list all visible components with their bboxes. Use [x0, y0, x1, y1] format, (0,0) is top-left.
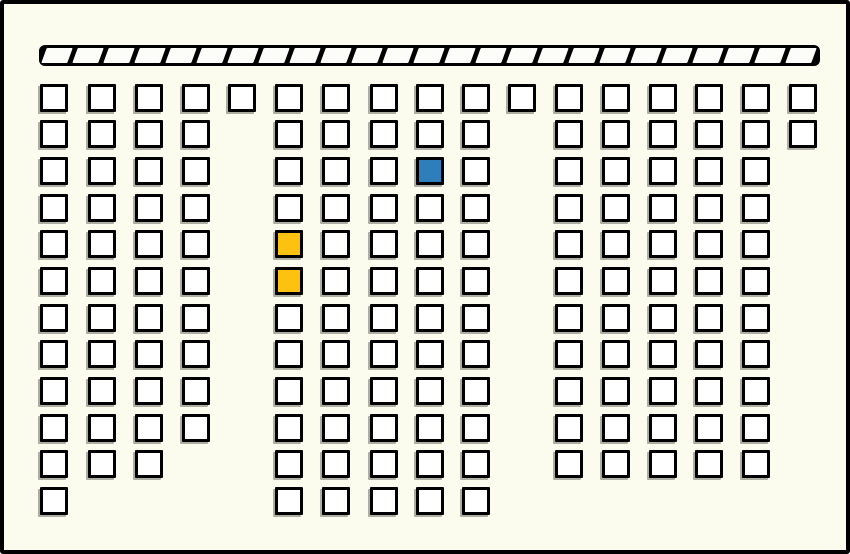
seat-r4-c15[interactable]	[695, 194, 723, 222]
seat-r7-c7[interactable]	[322, 304, 350, 332]
seat-r1-c1[interactable]	[40, 84, 68, 112]
seat-r6-c10[interactable]	[462, 267, 490, 295]
seat-r11-c1[interactable]	[40, 450, 68, 478]
seat-r7-c4[interactable]	[182, 304, 210, 332]
seat-r10-c16[interactable]	[742, 414, 770, 442]
seat-r1-c2[interactable]	[88, 84, 116, 112]
seat-r2-c10[interactable]	[462, 120, 490, 148]
seat-r4-c1[interactable]	[40, 194, 68, 222]
seat-r8-c15[interactable]	[695, 340, 723, 368]
seat-r10-c4[interactable]	[182, 414, 210, 442]
seat-r8-c13[interactable]	[602, 340, 630, 368]
seat-r3-c10[interactable]	[462, 157, 490, 185]
seat-grid	[4, 4, 846, 550]
seat-r2-c3[interactable]	[135, 120, 163, 148]
seat-r5-c15[interactable]	[695, 230, 723, 258]
seat-r1-c17[interactable]	[789, 84, 817, 112]
seat-r2-c15[interactable]	[695, 120, 723, 148]
seat-r1-c9[interactable]	[416, 84, 444, 112]
seat-r3-c7[interactable]	[322, 157, 350, 185]
seat-r1-c10[interactable]	[462, 84, 490, 112]
seat-r12-c8[interactable]	[370, 487, 398, 515]
seat-r1-c13[interactable]	[602, 84, 630, 112]
seat-r6-c16[interactable]	[742, 267, 770, 295]
seat-r9-c10[interactable]	[462, 377, 490, 405]
seat-r7-c16[interactable]	[742, 304, 770, 332]
seat-r10-c2[interactable]	[88, 414, 116, 442]
seat-r10-c6[interactable]	[275, 414, 303, 442]
seat-r12-c6[interactable]	[275, 487, 303, 515]
seat-r6-c9[interactable]	[416, 267, 444, 295]
seat-r7-c3[interactable]	[135, 304, 163, 332]
seat-r3-c13[interactable]	[602, 157, 630, 185]
seat-r10-c15[interactable]	[695, 414, 723, 442]
seat-r2-c1[interactable]	[40, 120, 68, 148]
seat-r5-c3[interactable]	[135, 230, 163, 258]
seat-r3-c8[interactable]	[370, 157, 398, 185]
seat-r6-c15[interactable]	[695, 267, 723, 295]
seat-r5-c14[interactable]	[649, 230, 677, 258]
seat-r2-c12[interactable]	[555, 120, 583, 148]
seat-r9-c14[interactable]	[649, 377, 677, 405]
seat-r8-c9[interactable]	[416, 340, 444, 368]
seat-r4-c16[interactable]	[742, 194, 770, 222]
seat-r1-c4[interactable]	[182, 84, 210, 112]
seat-r7-c12[interactable]	[555, 304, 583, 332]
seat-r2-c4[interactable]	[182, 120, 210, 148]
seat-r7-c10[interactable]	[462, 304, 490, 332]
seat-r2-c13[interactable]	[602, 120, 630, 148]
seat-r10-c10[interactable]	[462, 414, 490, 442]
seat-r1-c12[interactable]	[555, 84, 583, 112]
seat-r11-c13[interactable]	[602, 450, 630, 478]
seat-r8-c1[interactable]	[40, 340, 68, 368]
seat-r1-c3[interactable]	[135, 84, 163, 112]
seat-highlighted-orange-2[interactable]	[275, 267, 303, 295]
seat-r5-c1[interactable]	[40, 230, 68, 258]
seat-r6-c7[interactable]	[322, 267, 350, 295]
seat-r3-c15[interactable]	[695, 157, 723, 185]
seat-r8-c3[interactable]	[135, 340, 163, 368]
seat-r7-c1[interactable]	[40, 304, 68, 332]
seat-r9-c6[interactable]	[275, 377, 303, 405]
seat-r1-c6[interactable]	[275, 84, 303, 112]
seat-r9-c4[interactable]	[182, 377, 210, 405]
seat-r3-c2[interactable]	[88, 157, 116, 185]
seat-r2-c17[interactable]	[789, 120, 817, 148]
seat-r11-c8[interactable]	[370, 450, 398, 478]
seat-r3-c6[interactable]	[275, 157, 303, 185]
seat-r6-c8[interactable]	[370, 267, 398, 295]
seat-r8-c6[interactable]	[275, 340, 303, 368]
seat-r10-c13[interactable]	[602, 414, 630, 442]
seat-r1-c8[interactable]	[370, 84, 398, 112]
seat-highlighted-orange-1[interactable]	[275, 230, 303, 258]
seat-r11-c7[interactable]	[322, 450, 350, 478]
seat-r5-c9[interactable]	[416, 230, 444, 258]
seat-r1-c7[interactable]	[322, 84, 350, 112]
seat-r4-c3[interactable]	[135, 194, 163, 222]
seat-r9-c7[interactable]	[322, 377, 350, 405]
seat-r4-c10[interactable]	[462, 194, 490, 222]
seat-r10-c12[interactable]	[555, 414, 583, 442]
seat-r8-c7[interactable]	[322, 340, 350, 368]
seat-r1-c11[interactable]	[508, 84, 536, 112]
seat-r7-c14[interactable]	[649, 304, 677, 332]
seat-r4-c8[interactable]	[370, 194, 398, 222]
seat-r2-c14[interactable]	[649, 120, 677, 148]
seat-r11-c16[interactable]	[742, 450, 770, 478]
seat-r5-c2[interactable]	[88, 230, 116, 258]
seat-r9-c9[interactable]	[416, 377, 444, 405]
seat-r3-c16[interactable]	[742, 157, 770, 185]
seat-r11-c12[interactable]	[555, 450, 583, 478]
seat-r3-c1[interactable]	[40, 157, 68, 185]
seat-r2-c8[interactable]	[370, 120, 398, 148]
seat-r6-c2[interactable]	[88, 267, 116, 295]
seat-r9-c15[interactable]	[695, 377, 723, 405]
seat-r3-c12[interactable]	[555, 157, 583, 185]
seat-r4-c14[interactable]	[649, 194, 677, 222]
seat-r9-c2[interactable]	[88, 377, 116, 405]
seat-r11-c9[interactable]	[416, 450, 444, 478]
seat-r1-c15[interactable]	[695, 84, 723, 112]
seat-r6-c3[interactable]	[135, 267, 163, 295]
seat-r4-c12[interactable]	[555, 194, 583, 222]
seat-r9-c12[interactable]	[555, 377, 583, 405]
seat-r5-c13[interactable]	[602, 230, 630, 258]
seat-r10-c3[interactable]	[135, 414, 163, 442]
seat-r9-c8[interactable]	[370, 377, 398, 405]
seat-r12-c9[interactable]	[416, 487, 444, 515]
seat-r10-c14[interactable]	[649, 414, 677, 442]
seat-r9-c16[interactable]	[742, 377, 770, 405]
seat-r4-c4[interactable]	[182, 194, 210, 222]
seat-r2-c2[interactable]	[88, 120, 116, 148]
seat-r2-c16[interactable]	[742, 120, 770, 148]
seat-r4-c6[interactable]	[275, 194, 303, 222]
seat-r5-c16[interactable]	[742, 230, 770, 258]
seat-r10-c1[interactable]	[40, 414, 68, 442]
seat-r11-c10[interactable]	[462, 450, 490, 478]
seat-r10-c8[interactable]	[370, 414, 398, 442]
seat-r3-c14[interactable]	[649, 157, 677, 185]
seat-r12-c10[interactable]	[462, 487, 490, 515]
seat-r4-c7[interactable]	[322, 194, 350, 222]
seat-selected-blue[interactable]	[416, 157, 444, 185]
classroom-seating-map	[0, 0, 850, 554]
seat-r12-c1[interactable]	[40, 487, 68, 515]
seat-r1-c16[interactable]	[742, 84, 770, 112]
seat-r6-c13[interactable]	[602, 267, 630, 295]
seat-r11-c15[interactable]	[695, 450, 723, 478]
seat-r7-c15[interactable]	[695, 304, 723, 332]
seat-r5-c12[interactable]	[555, 230, 583, 258]
seat-r8-c16[interactable]	[742, 340, 770, 368]
seat-r2-c7[interactable]	[322, 120, 350, 148]
seat-r11-c2[interactable]	[88, 450, 116, 478]
seat-r1-c14[interactable]	[649, 84, 677, 112]
seat-r1-c5[interactable]	[228, 84, 256, 112]
seat-r8-c2[interactable]	[88, 340, 116, 368]
seat-r11-c3[interactable]	[135, 450, 163, 478]
seat-r5-c10[interactable]	[462, 230, 490, 258]
seat-r8-c4[interactable]	[182, 340, 210, 368]
seat-r5-c4[interactable]	[182, 230, 210, 258]
seat-r9-c13[interactable]	[602, 377, 630, 405]
seat-r12-c7[interactable]	[322, 487, 350, 515]
seat-r3-c4[interactable]	[182, 157, 210, 185]
seat-r7-c9[interactable]	[416, 304, 444, 332]
seat-r6-c14[interactable]	[649, 267, 677, 295]
seat-r5-c7[interactable]	[322, 230, 350, 258]
seat-r11-c14[interactable]	[649, 450, 677, 478]
seat-r6-c4[interactable]	[182, 267, 210, 295]
seat-r4-c2[interactable]	[88, 194, 116, 222]
seat-r4-c9[interactable]	[416, 194, 444, 222]
seat-r6-c12[interactable]	[555, 267, 583, 295]
seat-r10-c7[interactable]	[322, 414, 350, 442]
seat-r2-c6[interactable]	[275, 120, 303, 148]
seat-r8-c8[interactable]	[370, 340, 398, 368]
seat-r7-c13[interactable]	[602, 304, 630, 332]
seat-r5-c8[interactable]	[370, 230, 398, 258]
seat-r7-c6[interactable]	[275, 304, 303, 332]
seat-r6-c1[interactable]	[40, 267, 68, 295]
seat-r8-c10[interactable]	[462, 340, 490, 368]
seat-r9-c1[interactable]	[40, 377, 68, 405]
seat-r2-c9[interactable]	[416, 120, 444, 148]
seat-r7-c2[interactable]	[88, 304, 116, 332]
seat-r8-c14[interactable]	[649, 340, 677, 368]
seat-r4-c13[interactable]	[602, 194, 630, 222]
seat-r8-c12[interactable]	[555, 340, 583, 368]
seat-r3-c3[interactable]	[135, 157, 163, 185]
seat-r7-c8[interactable]	[370, 304, 398, 332]
seat-r9-c3[interactable]	[135, 377, 163, 405]
seat-r10-c9[interactable]	[416, 414, 444, 442]
seat-r11-c6[interactable]	[275, 450, 303, 478]
